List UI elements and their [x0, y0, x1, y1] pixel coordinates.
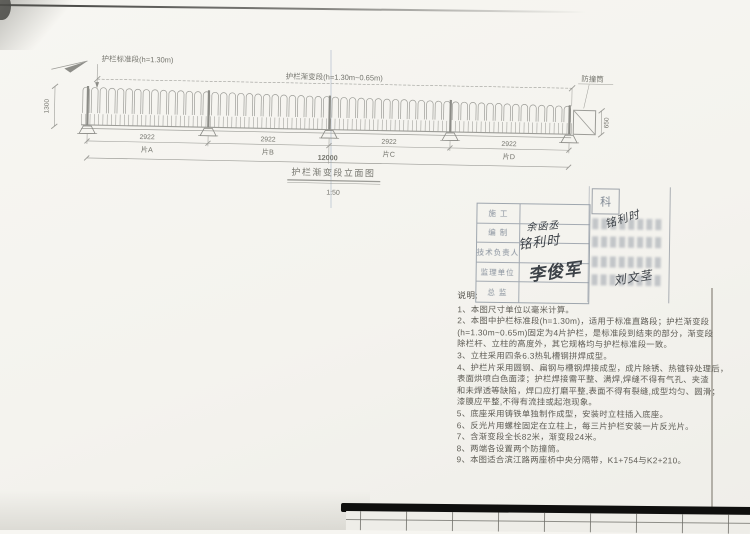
note-line: 3、立柱采用四条6.3热轧槽钢拼焊成型。: [457, 350, 750, 363]
barrel-label-underline: [578, 84, 613, 85]
stamp-row-label: 技术负责人: [477, 243, 520, 262]
title-underline-thin: [287, 182, 380, 184]
drawing-scale: 1:50: [326, 190, 340, 197]
panel-dim-row: [84, 134, 571, 168]
dim-height-left: 1300: [44, 99, 51, 114]
dim-panel-c: 2922: [381, 139, 396, 146]
stamp-row-label: 编 制: [477, 223, 520, 242]
post-base: [561, 135, 577, 143]
post-base: [79, 126, 95, 134]
barrel-diagonal: [573, 110, 595, 134]
dim-panel-d: 2922: [501, 141, 516, 148]
drawing-title: 护栏渐变段立面图: [291, 166, 375, 179]
notes-block: 说明: 1、本图尺寸单位以毫米计算。2、本图中护栏标准段(h=1.30m)，适用…: [457, 290, 750, 467]
stamp-corner-cell: 科: [591, 188, 619, 214]
underlying-sheet-titleblock: [346, 511, 750, 534]
note-line: 5、底座采用铸铁单独制作成型，安装时立柱插入底座。: [457, 408, 750, 421]
rail-loop-pattern: [83, 87, 571, 122]
title-underline-thick: [287, 180, 380, 182]
dim-total: 12000: [318, 153, 338, 162]
stamp-illegible-text: [592, 236, 664, 248]
stamp-row-label: 施 工: [477, 204, 520, 223]
scan-bottom-shadow: [0, 490, 370, 530]
post-base: [442, 133, 458, 141]
dim-panel-b: 2922: [260, 136, 275, 143]
panel-label-a: 片A: [141, 145, 153, 154]
note-line: 9、本图适合滨江路两座桥中央分隔带，K1+754与K2+210。: [457, 455, 750, 468]
panel-label-b: 片B: [262, 147, 274, 156]
panel-label-c: 片C: [383, 150, 396, 159]
dim-height-right: 650: [603, 117, 610, 128]
callout-standard-section: 护栏标准段(h=1.30m): [101, 53, 174, 64]
break-symbol-wedge: [64, 61, 87, 73]
panel-label-d: 片D: [502, 152, 515, 161]
scan-top-edge-line: [0, 4, 586, 13]
barrel-leader: [584, 84, 589, 108]
stamp-illegible-text: [592, 256, 664, 268]
callout-transition-section: 护栏渐变段(h=1.30m~0.65m): [286, 71, 384, 83]
notes-lines: 1、本图尺寸单位以毫米计算。2、本图中护栏标准段(h=1.30m)，适用于标准直…: [457, 304, 750, 468]
notes-heading: 说明:: [457, 290, 750, 303]
dim-panel-a: 2922: [139, 134, 154, 141]
post-base: [200, 128, 216, 136]
left-dim-line: [54, 86, 55, 126]
post-base: [321, 130, 337, 138]
callout-barrel: 防撞筒: [581, 73, 604, 83]
stamp-row-label: 监理单位: [477, 262, 520, 281]
rail-picket-pattern: [81, 114, 571, 134]
